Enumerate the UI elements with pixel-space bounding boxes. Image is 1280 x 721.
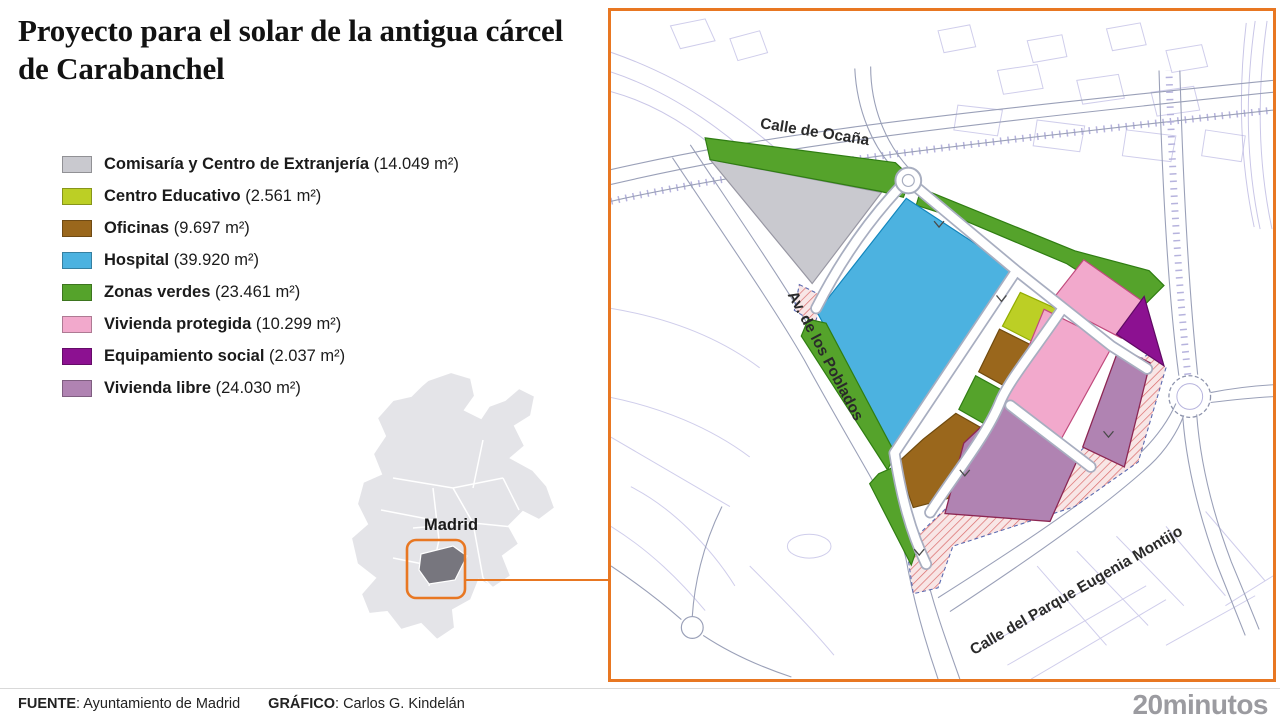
legend-area: (2.561 m²) — [245, 187, 321, 205]
20minutos-logo: 20minutos — [1132, 689, 1268, 721]
legend-swatch-hospital — [62, 252, 92, 269]
street-label-ocana: Calle de Ocaña — [759, 115, 871, 149]
site-map: Calle de Ocaña Av. de los Poblados Calle… — [608, 8, 1276, 682]
legend-label: Hospital — [104, 251, 169, 269]
locator-connector-line — [464, 579, 608, 581]
legend-area: (23.461 m²) — [215, 283, 300, 301]
legend-item: Centro Educativo (2.561 m²) — [62, 180, 459, 212]
legend-swatch-vivienda-protegida — [62, 316, 92, 333]
legend-item: Hospital (39.920 m²) — [62, 244, 459, 276]
legend-swatch-oficinas — [62, 220, 92, 237]
legend-label: Vivienda libre — [104, 379, 211, 397]
legend-label: Comisaría y Centro de Extranjería — [104, 155, 369, 173]
madrid-silhouette — [351, 372, 555, 640]
source-value: : Ayuntamiento de Madrid — [76, 696, 240, 712]
legend-area: (39.920 m²) — [174, 251, 259, 269]
legend-label: Vivienda protegida — [104, 315, 251, 333]
legend-area: (24.030 m²) — [216, 379, 301, 397]
madrid-locator-map: Madrid — [333, 360, 573, 650]
legend-swatch-equipamiento — [62, 348, 92, 365]
legend-item: Comisaría y Centro de Extranjería (14.04… — [62, 148, 459, 180]
legend-area: (10.299 m²) — [256, 315, 341, 333]
source-label: FUENTE — [18, 696, 76, 712]
legend-label: Equipamiento social — [104, 347, 264, 365]
legend-label: Zonas verdes — [104, 283, 210, 301]
legend-item: Vivienda protegida (10.299 m²) — [62, 308, 459, 340]
legend-item: Zonas verdes (23.461 m²) — [62, 276, 459, 308]
footer: FUENTE: Ayuntamiento de MadridGRÁFICO: C… — [0, 688, 1280, 721]
legend-swatch-comisaria — [62, 156, 92, 173]
legend-swatch-vivienda-libre — [62, 380, 92, 397]
madrid-label: Madrid — [424, 516, 478, 534]
legend-item: Oficinas (9.697 m²) — [62, 212, 459, 244]
legend-swatch-educativo — [62, 188, 92, 205]
legend-label: Centro Educativo — [104, 187, 241, 205]
credit-label: GRÁFICO — [268, 696, 335, 712]
page-title: Proyecto para el solar de la antigua cár… — [18, 12, 588, 88]
legend-swatch-zonas-verdes — [62, 284, 92, 301]
legend-area: (14.049 m²) — [374, 155, 459, 173]
legend-label: Oficinas — [104, 219, 169, 237]
street-label-montijo: Calle del Parque Eugenia Montijo — [967, 523, 1185, 659]
east-roundabout — [1159, 70, 1273, 635]
credit-value: : Carlos G. Kindelán — [335, 696, 465, 712]
legend-area: (9.697 m²) — [174, 219, 250, 237]
